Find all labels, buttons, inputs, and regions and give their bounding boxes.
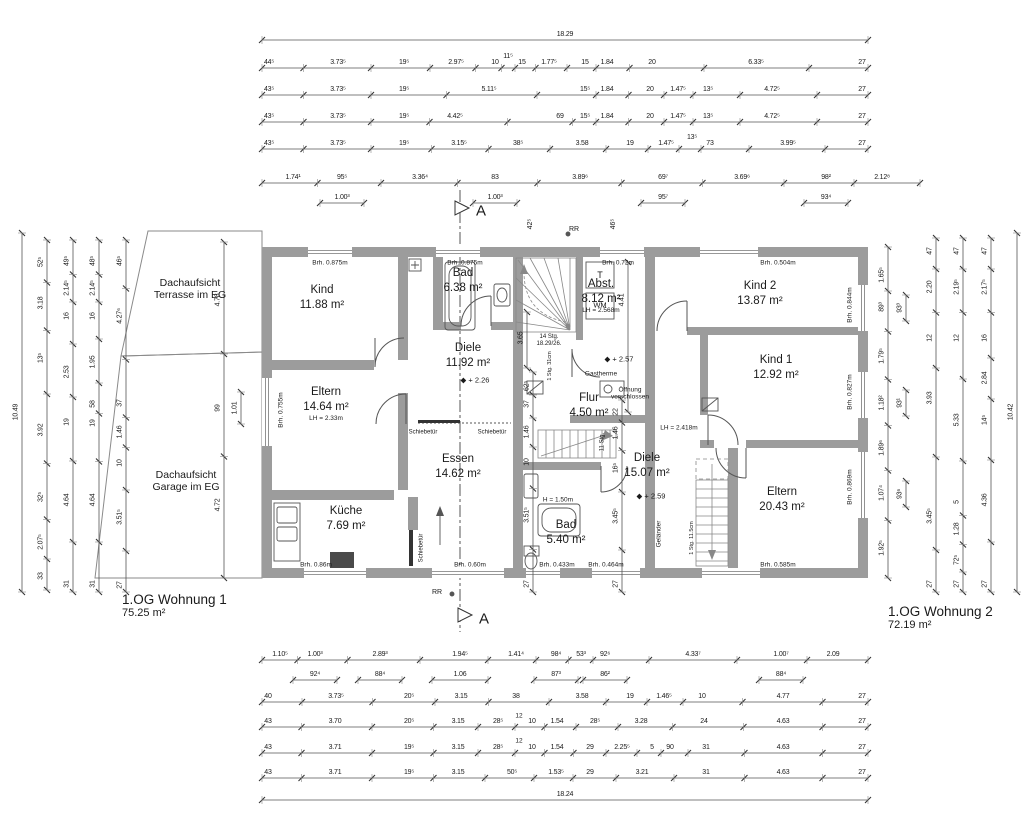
dim-text: 3.28	[635, 718, 648, 725]
apartment-area: 72.19 m²	[888, 619, 993, 631]
dim-text: 31	[90, 580, 97, 587]
annotation: Brh. 0.869m	[846, 469, 853, 504]
dim-text: 3.15	[452, 718, 465, 725]
dim-text: 2.14⁵	[90, 280, 97, 296]
room-area: 12.92 m²	[753, 368, 798, 383]
annotation: Brh. 0.86m	[300, 561, 332, 568]
dim-text: 3.15	[452, 769, 465, 776]
annotation: 11 Stg.	[600, 433, 607, 452]
dim-text: 33	[38, 572, 45, 579]
dim-text: 27	[613, 580, 620, 587]
dim-text: 20	[646, 113, 653, 120]
dim-text: 10	[528, 744, 535, 751]
dim-text: 5	[650, 744, 654, 751]
room-area: 5.40 m²	[547, 533, 586, 548]
dim-text: 3.73⁵	[330, 86, 346, 93]
dim-text: 2.19⁵	[954, 279, 961, 295]
room-name: Abst.	[582, 277, 621, 292]
dim-text: 31	[64, 580, 71, 587]
dim-text: 14⁵	[982, 415, 989, 425]
dim-text: 29	[586, 769, 593, 776]
dim-text: 88⁴	[776, 671, 786, 678]
dim-text: 3.69⁶	[734, 174, 750, 181]
annotation: 42⁵	[527, 219, 535, 230]
dim-text: 10	[528, 718, 535, 725]
dim-text: 1.74¹	[286, 174, 301, 181]
dim-text: 4.64	[90, 494, 97, 507]
dim-text: 44⁵	[264, 59, 274, 66]
dim-text: 53³	[576, 651, 586, 658]
annotation: Brh. 0.504m	[760, 259, 795, 266]
dim-text: 12	[927, 334, 934, 341]
dim-text: 15⁵	[580, 86, 590, 93]
annotation: Schiebetür	[478, 430, 507, 437]
room-label: Flur4.50 m²	[570, 391, 609, 421]
dim-text: 3.51⁵	[524, 507, 531, 523]
dim-text: 27	[858, 113, 865, 120]
annotation: A	[479, 610, 489, 627]
dim-text: 13⁵	[38, 353, 45, 363]
dim-text: 1.65⁵	[879, 267, 886, 283]
dim-text: 18.24	[557, 791, 574, 798]
annotation: Brh. 0.844m	[846, 287, 853, 322]
dim-text: 3.45⁵	[613, 508, 620, 524]
annotation: Geländer	[655, 521, 662, 548]
dim-text: 1.53⁵	[548, 769, 564, 776]
dim-text: 3.65	[518, 332, 525, 345]
annotation: Brh. 0.585m	[760, 561, 795, 568]
dim-text: 1.47⁵	[670, 113, 686, 120]
annotation: RR	[432, 589, 442, 597]
dim-text: 3.15	[452, 744, 465, 751]
room-name: Kind 1	[753, 353, 798, 368]
dim-text: 1.79⁵	[879, 348, 886, 364]
dim-text: 86²	[600, 671, 610, 678]
dim-text: 3.89⁶	[572, 174, 588, 181]
dim-text: 10	[117, 459, 124, 466]
dim-text: 1.28	[954, 523, 961, 536]
annotation: Brh. 0.875m	[312, 259, 347, 266]
dim-text: 27	[858, 140, 865, 147]
dim-text: 83	[491, 174, 498, 181]
dim-text: 12	[954, 334, 961, 341]
dim-text: 27	[927, 580, 934, 587]
dim-text: 10	[491, 59, 498, 66]
dim-text: 1.07⁴	[879, 485, 886, 501]
dim-text: 16	[64, 312, 71, 319]
dim-text: 62⁵	[524, 381, 531, 391]
annotation: Brh. 0.827m	[846, 374, 853, 409]
room-area: 11.92 m²	[446, 356, 491, 371]
dim-text: 3.73⁵	[330, 140, 346, 147]
annotation: 14 Stg. 18.29/26.	[536, 334, 561, 348]
dim-text: 13⁵	[703, 86, 713, 93]
dim-text: 3.18	[38, 297, 45, 310]
dim-text: 19	[626, 693, 633, 700]
dim-text: 1.00³	[308, 651, 323, 658]
dim-text: 2.53	[64, 366, 71, 379]
dim-text: 93⁴	[821, 194, 831, 201]
dim-text: 16	[982, 334, 989, 341]
dim-text: 95⁵	[337, 174, 347, 181]
dim-text: 49⁵	[64, 256, 71, 266]
dim-text: 43	[264, 718, 271, 725]
dim-text: 3.73⁵	[330, 113, 346, 120]
room-label: Kind11.88 m²	[300, 283, 345, 313]
annotation: Dachaufsicht Garage im EG	[152, 469, 219, 493]
dim-text: 1.00³	[335, 194, 350, 201]
dim-text: 2.09	[827, 651, 840, 658]
dim-text: 3.51⁵	[117, 509, 124, 525]
room-name: Flur	[570, 391, 609, 406]
dim-text: 28⁵	[493, 718, 503, 725]
dim-text: 10	[698, 693, 705, 700]
dim-text: 2.97⁵	[448, 59, 464, 66]
room-area: 13.87 m²	[737, 294, 782, 309]
room-area: 8.12 m²	[582, 292, 621, 307]
dim-text: 27	[858, 59, 865, 66]
room-label: Abst.8.12 m²LH = 2.568m	[582, 277, 621, 315]
dim-text: 73	[706, 140, 713, 147]
room-name: Bad	[547, 518, 586, 533]
room-name: Kind	[300, 283, 345, 298]
dim-text: 43⁵	[264, 113, 274, 120]
dim-text: 27	[858, 718, 865, 725]
dim-text: 28⁵	[590, 718, 600, 725]
dim-text: 1.18²	[879, 396, 886, 411]
dim-text: 88⁴	[375, 671, 385, 678]
dim-text: 3.71	[329, 744, 342, 751]
room-name: Küche	[327, 504, 366, 519]
dim-text: 40	[264, 693, 271, 700]
dim-text: 93⁶	[897, 489, 904, 499]
annotation: 1 Stg. 11.5cm	[689, 521, 695, 555]
dim-text: 2.14⁵	[64, 280, 71, 296]
apartment-title-left: 1.OG Wohnung 1 75.25 m²	[122, 592, 227, 619]
dim-text: 28⁵	[493, 744, 503, 751]
dim-text: 10	[524, 458, 531, 465]
dim-text: 92⁶	[600, 651, 610, 658]
dim-text: 19⁵	[404, 744, 414, 751]
dim-text: 13⁵	[703, 113, 713, 120]
dim-text: 1.01	[232, 402, 239, 415]
annotation: H = 1.50m	[543, 496, 573, 503]
dim-text: 1.46⁵	[656, 693, 672, 700]
room-label: Bad5.40 m²	[547, 518, 586, 548]
room-label: Essen14.62 m²	[435, 452, 480, 482]
dim-text: 19⁵	[399, 140, 409, 147]
dim-text: 3.71	[329, 769, 342, 776]
dim-text: 38	[512, 693, 519, 700]
room-area: 20.43 m²	[759, 500, 804, 515]
dim-text: 20⁵	[404, 693, 414, 700]
room-name: Essen	[435, 452, 480, 467]
room-label: Kind 213.87 m²	[737, 279, 782, 309]
annotation: ◆ + 2.26	[461, 377, 490, 386]
dim-text: 32⁵	[38, 492, 45, 502]
annotation: 12	[515, 712, 522, 719]
dim-text: 58	[90, 400, 97, 407]
apartment-name: 1.OG Wohnung 2	[888, 604, 993, 619]
dim-text: 3.45⁵	[927, 508, 934, 524]
room-name: Eltern	[303, 385, 348, 400]
room-label: Diele15.07 m²	[624, 451, 669, 481]
dim-text: 27	[858, 86, 865, 93]
dim-text: 1.84	[601, 86, 614, 93]
dim-text: 1.84	[601, 59, 614, 66]
dim-text: 27	[524, 580, 531, 587]
dim-text: 87³	[551, 671, 561, 678]
dim-text: 89³	[879, 302, 886, 312]
dim-text: 16⁵	[613, 463, 620, 473]
annotation: 1 Stg. 31cm	[547, 351, 553, 380]
annotation: 46⁵	[610, 219, 618, 230]
dim-text: 4.72	[215, 499, 222, 512]
dim-text: 69	[556, 113, 563, 120]
annotation: Schiebetür	[409, 430, 438, 437]
annotation: Brh. 0.72m	[602, 259, 634, 266]
dim-text: 1.92⁵	[879, 540, 886, 556]
dim-text: 38⁵	[513, 140, 523, 147]
annotation: Brh. 0.464m	[588, 561, 623, 568]
dim-text: 37	[117, 399, 124, 406]
room-area: 14.62 m²	[435, 467, 480, 482]
dim-text: 4.42⁵	[447, 113, 463, 120]
dim-text: 2.07⁵	[38, 534, 45, 550]
annotation: LH = 2.418m	[660, 424, 697, 431]
dim-text: 1.46	[613, 427, 620, 440]
dim-text: 13⁵	[687, 134, 697, 141]
dim-text: 4.63	[777, 718, 790, 725]
dim-text: 5.33	[954, 414, 961, 427]
dim-text: 3.99⁵	[780, 140, 796, 147]
annotation: Dachaufsicht Terrasse im EG	[154, 277, 226, 301]
dim-text: 20⁵	[404, 718, 414, 725]
room-name: Diele	[624, 451, 669, 466]
dim-text: 93³	[897, 303, 904, 313]
dim-text: 4.36	[982, 494, 989, 507]
room-label: Kind 112.92 m²	[753, 353, 798, 383]
dim-text: 3.58	[576, 693, 589, 700]
annotation: 12	[515, 737, 522, 744]
room-clear-height: LH = 2.568m	[582, 307, 621, 315]
dim-text: 1.00³	[488, 194, 503, 201]
annotation: ◆ + 2.57	[605, 356, 634, 365]
apartment-title-right: 1.OG Wohnung 2 72.19 m²	[888, 604, 993, 631]
annotation: RR	[569, 226, 579, 234]
dim-text: 52⁵	[38, 257, 45, 267]
dim-text: 43	[264, 769, 271, 776]
room-area: 6.38 m²	[444, 281, 483, 296]
dim-text: 1.47⁵	[658, 140, 674, 147]
dim-text: 19⁵	[399, 113, 409, 120]
dim-text: 3.36⁴	[412, 174, 428, 181]
dim-text: 19	[64, 418, 71, 425]
dim-text: 4.27⁶	[117, 308, 124, 324]
dim-text: 19	[626, 140, 633, 147]
dim-text: 10.42	[1008, 404, 1015, 421]
dim-text: 1.10⁵	[272, 651, 288, 658]
annotation: Brh. 0.60m	[454, 561, 486, 568]
dim-text: 4.63	[777, 744, 790, 751]
annotation: Öffnung verschlossen	[611, 387, 649, 402]
dim-text: 1.54	[551, 744, 564, 751]
room-area: 11.88 m²	[300, 298, 345, 313]
dim-text: 2.12⁸	[874, 174, 890, 181]
dim-text: 5.11⁵	[481, 86, 496, 93]
dim-text: 29	[586, 744, 593, 751]
dim-text: 50⁵	[507, 769, 517, 776]
dim-text: 4.63	[777, 769, 790, 776]
dim-text: 4.72⁵	[764, 86, 780, 93]
dim-text: 3.15⁵	[451, 140, 467, 147]
dim-text: 19⁵	[399, 86, 409, 93]
dim-text: 27	[982, 580, 989, 587]
room-area: 14.64 m²	[303, 400, 348, 415]
dim-text: 1.77⁵	[541, 59, 557, 66]
dim-text: 19⁵	[404, 769, 414, 776]
dim-text: 24	[700, 718, 707, 725]
room-label: Diele11.92 m²	[446, 341, 491, 371]
dim-text: 5	[954, 500, 961, 504]
floorplan-canvas: 1.OG Wohnung 1 75.25 m² 1.OG Wohnung 2 7…	[0, 0, 1024, 817]
room-area: 4.50 m²	[570, 406, 609, 421]
dim-text: 31	[702, 769, 709, 776]
dim-text: 15	[518, 59, 525, 66]
dim-text: 27	[858, 744, 865, 751]
dim-text: 27	[858, 769, 865, 776]
room-label: Eltern20.43 m²	[759, 485, 804, 515]
dim-text: 18.29	[557, 31, 574, 38]
dim-text: 1.54	[551, 718, 564, 725]
dim-text: 10.49	[13, 404, 20, 421]
room-name: Kind 2	[737, 279, 782, 294]
dim-text: 3.58	[576, 140, 589, 147]
dim-text: 27	[858, 693, 865, 700]
dim-text: 43⁵	[264, 86, 274, 93]
dim-text: 3.73⁵	[330, 59, 346, 66]
dim-text: 15⁵	[580, 113, 590, 120]
dim-text: 20	[646, 86, 653, 93]
dim-text: 19	[90, 419, 97, 426]
dim-text: 3.21	[636, 769, 649, 776]
dim-text: 1.94⁵	[452, 651, 468, 658]
dim-text: 95⁷	[658, 194, 668, 201]
dim-text: 4.33⁷	[685, 651, 700, 658]
dim-text: 27	[117, 581, 124, 588]
dim-text: 3.93	[927, 392, 934, 405]
dim-text: 43⁵	[264, 140, 274, 147]
annotation: Schiebetür	[419, 534, 426, 563]
dim-text: 2.20	[927, 281, 934, 294]
dim-text: 90	[666, 744, 673, 751]
dim-text: 1.41⁴	[508, 651, 524, 658]
dim-text: 1.46	[117, 426, 124, 439]
dim-text: 1.89⁶	[879, 440, 886, 456]
dim-text: 47	[927, 247, 934, 254]
dim-text: 11⁵	[503, 53, 513, 60]
dim-text: 27	[954, 580, 961, 587]
dim-text: 4.64	[64, 494, 71, 507]
annotation: Gastherme	[585, 370, 617, 377]
dim-text: 20	[648, 59, 655, 66]
annotation: ◆ + 2.59	[637, 493, 666, 502]
dim-text: 4.77	[777, 693, 790, 700]
room-name: Bad	[444, 266, 483, 281]
apartment-name: 1.OG Wohnung 1	[122, 592, 227, 607]
dim-text: 47	[982, 247, 989, 254]
dim-text: 1.47⁵	[670, 86, 686, 93]
dim-text: 3.92	[38, 424, 45, 437]
dim-text: 19⁵	[399, 59, 409, 66]
dim-text: 1.46	[524, 426, 531, 439]
dim-text: 46⁵	[117, 256, 124, 266]
dim-text: 1.95	[90, 356, 97, 369]
dim-text: 37	[524, 400, 531, 407]
dim-text: 2.25⁵	[614, 744, 630, 751]
annotation: Brh. 0.433m	[539, 561, 574, 568]
dim-text: 47	[954, 247, 961, 254]
dim-text: 99	[215, 404, 222, 411]
dim-text: 4.72⁵	[764, 113, 780, 120]
dim-text: 1.00⁷	[773, 651, 788, 658]
dim-text: 43	[264, 744, 271, 751]
room-label: Küche7.69 m²	[327, 504, 366, 534]
room-name: Diele	[446, 341, 491, 356]
dim-text: 2.17⁵	[982, 279, 989, 295]
dim-text: 2.89³	[373, 651, 388, 658]
dim-text: 3.70	[329, 718, 342, 725]
dim-text: 31	[702, 744, 709, 751]
apartment-area: 75.25 m²	[122, 607, 227, 619]
dim-text: 1.06	[454, 671, 467, 678]
dim-text: 93¹	[897, 398, 904, 408]
dim-text: 2.84	[982, 372, 989, 385]
room-area: 15.07 m²	[624, 466, 669, 481]
dim-text: 48⁵	[90, 256, 97, 266]
room-label: Bad6.38 m²	[444, 266, 483, 296]
dim-text: 3.73⁵	[328, 693, 344, 700]
dim-text: 22	[613, 408, 620, 415]
annotation: Brh. 0.755m	[277, 392, 284, 427]
dim-text: 15	[581, 59, 588, 66]
dim-text: 98²	[821, 174, 831, 181]
dim-text: 98⁴	[551, 651, 561, 658]
room-label: Eltern14.64 m²LH = 2.33m	[303, 385, 348, 423]
dim-text: 92⁴	[310, 671, 320, 678]
dim-text: 6.33⁵	[748, 59, 764, 66]
dim-text: 69⁷	[658, 174, 668, 181]
room-name: Eltern	[759, 485, 804, 500]
dim-text: 72⁵	[954, 555, 961, 565]
dim-text: 1.84	[601, 113, 614, 120]
text-layer: 1.OG Wohnung 1 75.25 m² 1.OG Wohnung 2 7…	[0, 0, 1024, 817]
dim-text: 16	[90, 312, 97, 319]
annotation: A	[476, 202, 486, 219]
room-area: 7.69 m²	[327, 519, 366, 534]
room-clear-height: LH = 2.33m	[303, 415, 348, 423]
dim-text: 3.15	[455, 693, 468, 700]
